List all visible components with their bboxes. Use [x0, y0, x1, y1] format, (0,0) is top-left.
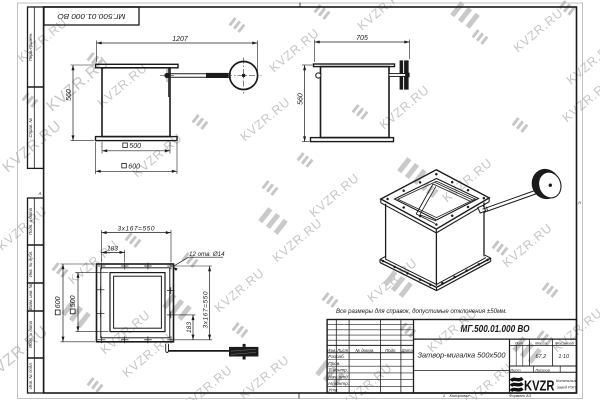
- svg-text:завод РЭП: завод РЭП: [556, 385, 576, 389]
- svg-text:Листов: Листов: [534, 368, 550, 373]
- svg-text:Подп. и дата: Подп. и дата: [28, 320, 33, 348]
- svg-text:560: 560: [297, 93, 304, 105]
- svg-text:183: 183: [107, 245, 118, 252]
- svg-text:KVZR: KVZR: [524, 378, 555, 395]
- svg-text:Утв.: Утв.: [328, 388, 338, 393]
- svg-text:Разраб.: Разраб.: [328, 354, 345, 359]
- svg-text:Инв. № подл.: Инв. № подл.: [28, 362, 33, 389]
- svg-text:Подп.: Подп.: [385, 348, 396, 353]
- svg-text:500: 500: [70, 295, 77, 307]
- svg-text:Лист: Лист: [336, 348, 348, 353]
- svg-text:1: 1: [443, 393, 445, 398]
- svg-text:3x167=550: 3x167=550: [118, 226, 155, 233]
- svg-text:Изм.: Изм.: [327, 348, 336, 353]
- svg-text:№ докум.: № докум.: [355, 348, 374, 353]
- svg-text:Взам. инв. №: Взам. инв. №: [28, 283, 33, 310]
- svg-text:600: 600: [128, 164, 140, 171]
- svg-text:600: 600: [55, 296, 62, 308]
- svg-text:Копировал: Копировал: [450, 393, 471, 398]
- svg-text:Подп. и дата: Подп. и дата: [28, 207, 33, 235]
- svg-text:1207: 1207: [172, 36, 189, 43]
- svg-text:Инв. № дубл.: Инв. № дубл.: [28, 251, 33, 277]
- svg-text:Все размеры для справок, допус: Все размеры для справок, допустимые откл…: [336, 308, 507, 315]
- svg-text:560: 560: [66, 89, 73, 101]
- svg-text:Лит.: Лит.: [514, 341, 524, 346]
- svg-text:А: А: [37, 191, 41, 196]
- svg-text:Лист: Лист: [509, 368, 521, 373]
- svg-text:Масса: Масса: [535, 341, 548, 346]
- svg-text:Перв. примен.: Перв. примен.: [28, 33, 33, 62]
- svg-text:А: А: [577, 200, 581, 205]
- svg-text:МГ.500.01.000 ВО: МГ.500.01.000 ВО: [461, 324, 530, 335]
- svg-text:Т. контр.: Т. контр.: [328, 368, 348, 373]
- svg-text:Формат А3: Формат А3: [509, 393, 532, 398]
- svg-text:Н. контр.: Н. контр.: [328, 381, 349, 386]
- svg-text:12 отв. Ø14: 12 отв. Ø14: [189, 251, 225, 258]
- svg-text:3x167=550: 3x167=550: [203, 291, 210, 328]
- svg-text:Масштаб: Масштаб: [555, 341, 574, 346]
- svg-text:Пров.: Пров.: [328, 361, 340, 366]
- svg-text:Нач. отд: Нач. отд: [328, 374, 348, 379]
- svg-text:Затвор-мигалка 500x500: Затвор-мигалка 500x500: [418, 351, 507, 360]
- svg-text:500: 500: [129, 143, 141, 150]
- svg-text:67,2: 67,2: [535, 354, 546, 360]
- svg-text:Котельный: Котельный: [556, 379, 578, 383]
- svg-text:705: 705: [356, 35, 368, 42]
- svg-text:1:10: 1:10: [558, 354, 570, 360]
- svg-text:Справ. №: Справ. №: [28, 118, 33, 138]
- svg-text:183: 183: [186, 322, 193, 333]
- svg-text:МГ.500.01.000 ВО: МГ.500.01.000 ВО: [57, 12, 126, 19]
- svg-text:Дата: Дата: [401, 348, 414, 353]
